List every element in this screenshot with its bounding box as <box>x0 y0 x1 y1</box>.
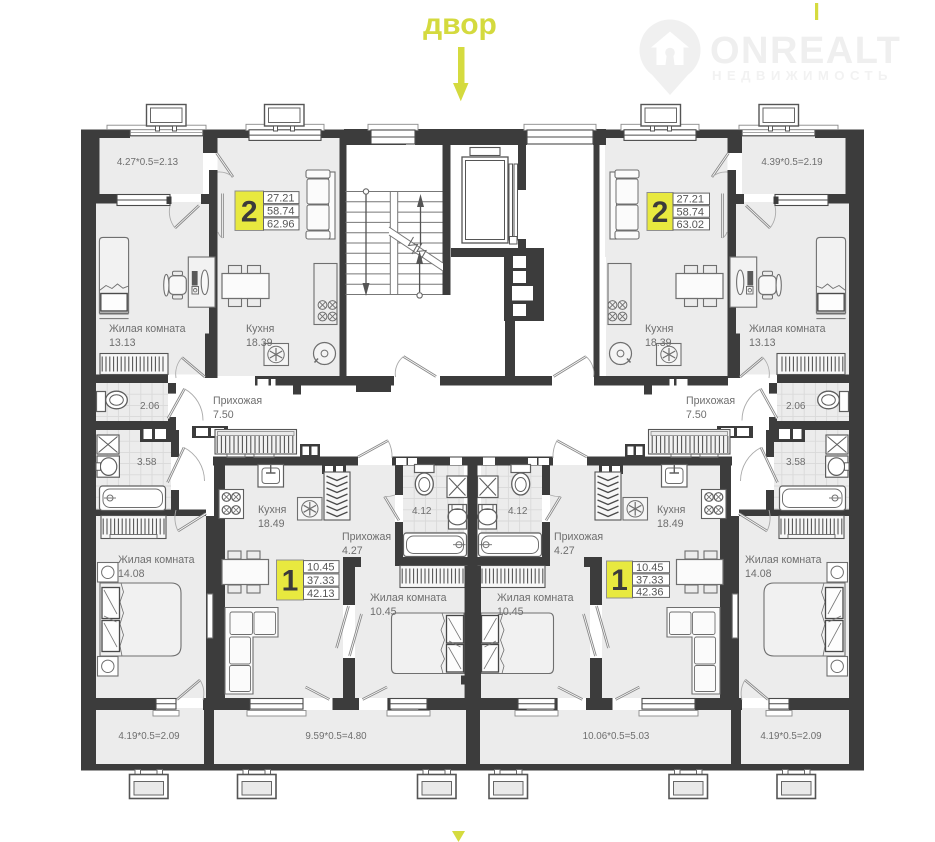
svg-text:4.27*0.5=2.13: 4.27*0.5=2.13 <box>117 157 179 168</box>
svg-text:7.50: 7.50 <box>213 409 234 421</box>
svg-text:Кухня: Кухня <box>246 323 274 335</box>
svg-text:ONREALT: ONREALT <box>710 30 901 72</box>
svg-text:58.74: 58.74 <box>267 206 295 218</box>
svg-text:13.13: 13.13 <box>109 337 136 349</box>
svg-text:14.08: 14.08 <box>745 568 772 580</box>
svg-text:Жилая комната: Жилая комната <box>749 323 826 335</box>
svg-text:63.02: 63.02 <box>677 219 705 231</box>
svg-text:9.59*0.5=4.80: 9.59*0.5=4.80 <box>305 731 367 742</box>
svg-text:10.45: 10.45 <box>307 561 335 573</box>
svg-text:14.08: 14.08 <box>118 568 145 580</box>
svg-text:4.27: 4.27 <box>554 545 575 557</box>
svg-text:Прихожая: Прихожая <box>342 531 391 543</box>
svg-text:2.06: 2.06 <box>140 401 160 412</box>
svg-text:27.21: 27.21 <box>267 192 295 204</box>
svg-text:4.27: 4.27 <box>342 545 363 557</box>
svg-text:2: 2 <box>241 195 258 228</box>
svg-text:42.13: 42.13 <box>307 588 335 600</box>
svg-text:27.21: 27.21 <box>677 194 705 206</box>
svg-text:Кухня: Кухня <box>645 323 673 335</box>
svg-text:4.19*0.5=2.09: 4.19*0.5=2.09 <box>760 731 821 742</box>
svg-text:1: 1 <box>611 564 628 597</box>
svg-text:Жилая комната: Жилая комната <box>745 554 822 566</box>
svg-text:62.96: 62.96 <box>267 219 295 231</box>
svg-text:58.74: 58.74 <box>677 206 705 218</box>
svg-text:Жилая комната: Жилая комната <box>370 592 447 604</box>
svg-text:2: 2 <box>652 196 669 229</box>
svg-text:Кухня: Кухня <box>657 504 685 516</box>
svg-text:10.45: 10.45 <box>370 606 397 618</box>
svg-text:4.39*0.5=2.19: 4.39*0.5=2.19 <box>761 157 822 168</box>
svg-text:Прихожая: Прихожая <box>213 395 262 407</box>
svg-text:2.06: 2.06 <box>786 401 806 412</box>
svg-text:3.58: 3.58 <box>137 457 157 468</box>
svg-text:3.58: 3.58 <box>786 457 806 468</box>
svg-text:Жилая комната: Жилая комната <box>497 592 574 604</box>
svg-text:4.19*0.5=2.09: 4.19*0.5=2.09 <box>118 731 179 742</box>
svg-text:18.39: 18.39 <box>246 337 273 349</box>
svg-text:Прихожая: Прихожая <box>554 531 603 543</box>
svg-text:Прихожая: Прихожая <box>686 395 735 407</box>
svg-text:10.45: 10.45 <box>497 606 524 618</box>
svg-text:13.13: 13.13 <box>749 337 776 349</box>
svg-text:18.49: 18.49 <box>258 518 285 530</box>
svg-text:1: 1 <box>282 565 299 598</box>
svg-text:Жилая комната: Жилая комната <box>118 554 195 566</box>
svg-text:4.12: 4.12 <box>412 506 432 517</box>
svg-text:18.39: 18.39 <box>645 337 672 349</box>
svg-text:НЕДВИЖИМОСТЬ: НЕДВИЖИМОСТЬ <box>712 68 893 83</box>
svg-text:10.45: 10.45 <box>636 562 664 574</box>
svg-text:4.12: 4.12 <box>508 506 528 517</box>
svg-text:37.33: 37.33 <box>636 574 664 586</box>
svg-text:18.49: 18.49 <box>657 518 684 530</box>
svg-text:42.36: 42.36 <box>636 587 664 599</box>
svg-text:7.50: 7.50 <box>686 409 707 421</box>
svg-text:Кухня: Кухня <box>258 504 286 516</box>
svg-text:37.33: 37.33 <box>307 575 335 587</box>
svg-text:Жилая комната: Жилая комната <box>109 323 186 335</box>
svg-text:10.06*0.5=5.03: 10.06*0.5=5.03 <box>583 731 650 742</box>
svg-text:двор: двор <box>423 8 497 41</box>
